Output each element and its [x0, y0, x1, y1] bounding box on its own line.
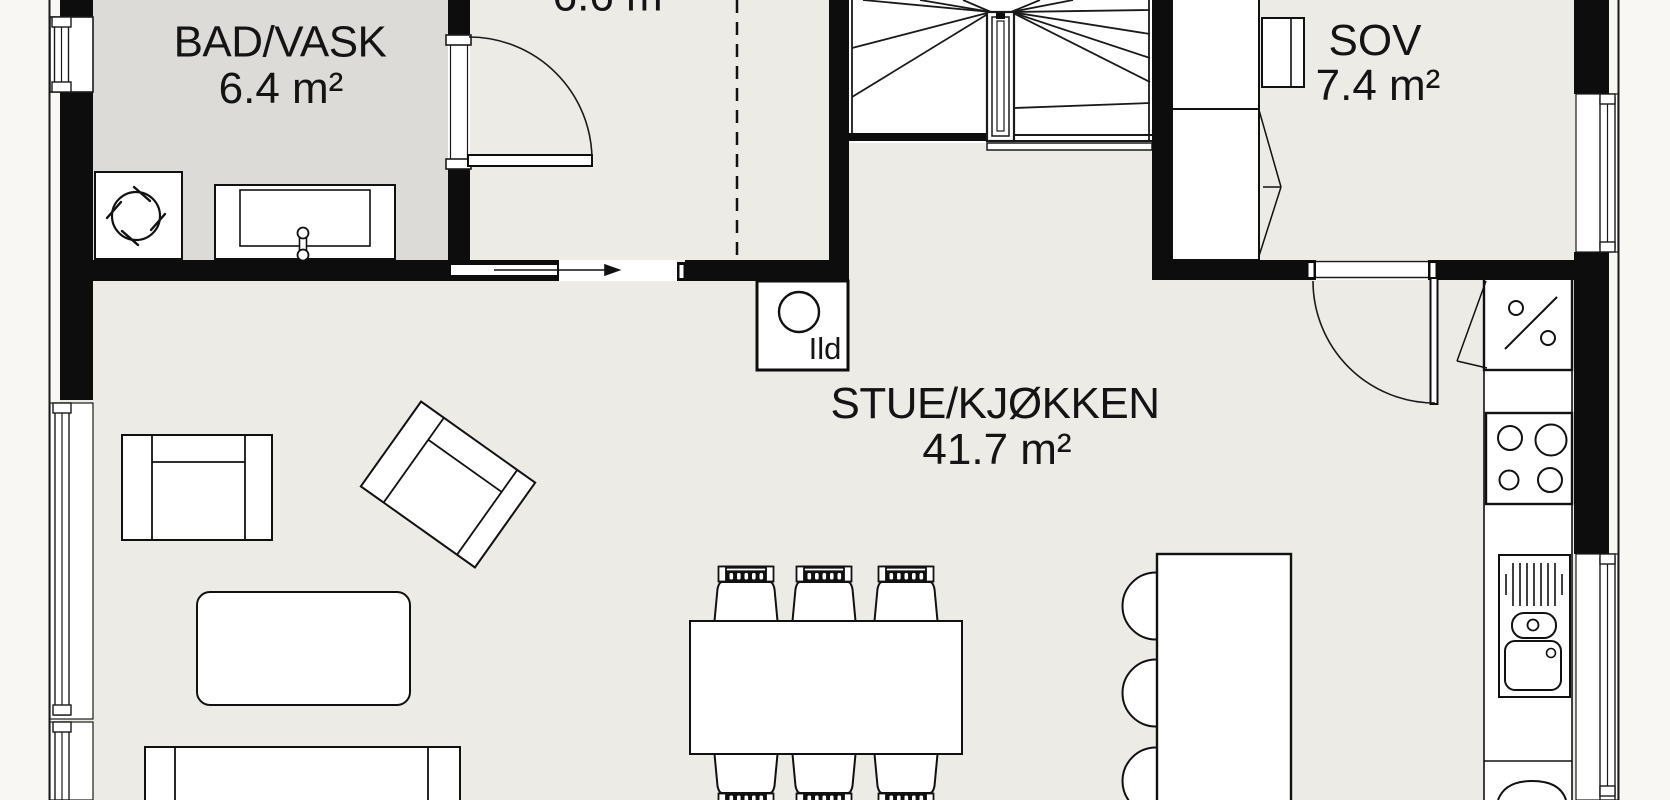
svg-text:6.4 m²: 6.4 m²: [219, 64, 344, 113]
svg-text:Ild: Ild: [809, 331, 842, 366]
svg-text:6.6 m²: 6.6 m²: [553, 0, 678, 21]
svg-text:BAD/VASK: BAD/VASK: [174, 18, 387, 67]
svg-text:7.4 m²: 7.4 m²: [1316, 61, 1441, 110]
svg-text:STUE/KJØKKEN: STUE/KJØKKEN: [831, 379, 1160, 428]
svg-text:41.7 m²: 41.7 m²: [922, 425, 1071, 474]
svg-text:SOV: SOV: [1329, 16, 1423, 65]
